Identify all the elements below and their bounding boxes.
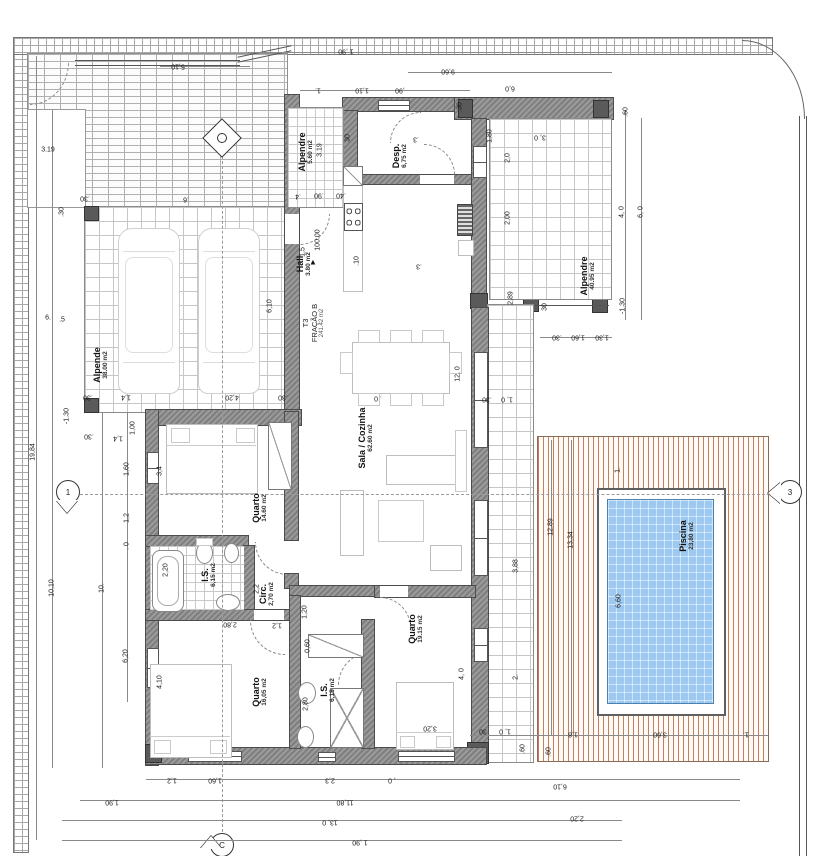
dimension-label: 4, 0: [619, 206, 626, 218]
dimension-label: 1,2: [272, 622, 282, 629]
dimension-label: 4,20: [225, 394, 239, 401]
dimension-label: 1,80: [487, 129, 494, 143]
dimension-label: 30: [542, 303, 549, 311]
room-area: 16,05 m2: [261, 677, 269, 707]
coffee-table: [378, 500, 424, 542]
room-name: Alpendre: [579, 256, 589, 295]
dimension-label: .4: [295, 193, 301, 200]
dimension-label: 6,10: [553, 783, 567, 790]
kitchen-window: [473, 146, 487, 178]
room-name: I.S.: [319, 678, 329, 702]
dimension-label: 1,10: [355, 87, 369, 94]
dimension-label: . 0: [374, 395, 382, 402]
bed-line: [396, 732, 452, 733]
level-marker-value: 100.00: [315, 229, 322, 250]
dimension-label: 0,60: [305, 639, 312, 653]
room-area: 6,15 m2: [329, 678, 337, 702]
dim-line: [300, 90, 470, 91]
south-window-2: [318, 752, 336, 762]
dimension-label: .30: [278, 394, 288, 401]
room-area: 3.80 m2: [305, 252, 313, 276]
dim-line: [248, 52, 612, 53]
bath2-closet: [308, 634, 364, 658]
dimension-label: 1,90: [105, 799, 119, 806]
dimension-label: 5,10: [171, 63, 185, 70]
dimension-label: .60: [520, 744, 527, 754]
pantry-window: [378, 100, 410, 111]
pillow: [154, 740, 171, 754]
wardrobe-1: [268, 422, 292, 490]
dimension-label: 2,20: [163, 563, 170, 577]
dimension-label: 4,10: [157, 675, 164, 689]
dim-line: [641, 118, 642, 320]
fraction-title: T3 FRAÇÃO B 241.42 m2: [301, 304, 327, 342]
floor-plan-canvas: 1 3 C ▲ 100.00 T3 FRAÇÃO B 241.42 m2 5,1…: [0, 0, 816, 856]
car-1: [118, 228, 180, 394]
room-name: Alpendre: [297, 132, 307, 171]
section-marker-right: 3: [778, 480, 802, 504]
dimension-label: 1,8: [568, 731, 578, 738]
dimension-label: 13, 0: [322, 819, 338, 826]
room-area: 23,80 m2: [688, 520, 696, 552]
pillow: [236, 428, 255, 443]
room-area: 5.60 m2: [307, 132, 315, 171]
room-name: Piscina: [678, 520, 688, 552]
dimension-label: 6.: [45, 315, 51, 322]
room-label-hall: Hall3.80 m2: [295, 252, 313, 276]
bed-line: [166, 445, 256, 446]
room-area: 6,15 m2: [210, 563, 218, 587]
dimension-label: .40: [336, 192, 346, 199]
fridge-icon: [458, 205, 472, 235]
dimension-label: 6,20: [123, 649, 130, 663]
pantry-door-opening: [420, 175, 454, 184]
dimension-label: 9,60: [441, 68, 455, 75]
room-label-is-1: I.S.6,15 m2: [200, 563, 218, 587]
dimension-label: .60: [623, 107, 630, 117]
dim-line: [470, 735, 768, 736]
fraction-title-line1: T3: [301, 304, 310, 342]
dining-table: [352, 342, 450, 394]
dimension-label: .30: [482, 396, 492, 403]
dimension-label: 1 ,90: [338, 48, 354, 55]
toilet-1-tank: [196, 538, 213, 546]
dimension-label: .30: [83, 394, 93, 401]
dimension-label: 10.: [99, 583, 106, 593]
dimension-label: 3,60: [653, 731, 667, 738]
dimension-label: 6,10: [267, 299, 274, 313]
dimension-label: 1.: [615, 467, 622, 473]
dimension-label: 1,4: [121, 394, 131, 401]
room-name: Desp.: [391, 144, 401, 169]
dimension-label: .90: [314, 192, 324, 199]
dimension-label: 2,80: [223, 621, 237, 628]
stove-icon: [344, 203, 363, 231]
wall-north-porch: [455, 98, 613, 119]
dimension-label: ,90: [395, 87, 405, 94]
dimension-label: -1.30: [64, 408, 71, 424]
bedroom3-window-east: [474, 628, 488, 662]
room-label-quarto-2: Quarto16,05 m2: [251, 677, 269, 707]
porch-post-sw: [471, 294, 487, 308]
dimension-label: 2,89: [508, 291, 515, 305]
dimension-label: 1.: [743, 731, 749, 738]
dimension-label: 1, 0: [499, 728, 511, 735]
dimension-label: 13,34: [568, 531, 575, 549]
dimension-label: .30: [80, 195, 90, 202]
wall-pantry-kitchen: [345, 175, 480, 184]
room-name: Quarto: [251, 677, 261, 707]
washbasin-1: [216, 594, 240, 611]
carport-post-nw: [85, 207, 98, 220]
sofa-side: [340, 490, 364, 556]
dimension-label: .30: [457, 102, 464, 112]
room-area: 19.15 m2: [417, 614, 425, 644]
room-area: 14.60 m2: [261, 493, 269, 523]
sofa-long: [386, 455, 462, 485]
room-name: Hall: [295, 252, 305, 276]
armchair: [430, 545, 462, 571]
pillow: [210, 740, 227, 754]
dimension-label: 3, 0: [534, 134, 546, 141]
dim-line: [408, 72, 612, 73]
pillow: [400, 736, 415, 748]
dimension-label: . 0: [124, 542, 131, 550]
room-label-sala-cozinha: Sala / Cozinha62.60 m2: [357, 407, 375, 468]
dimension-label: 11,80: [337, 799, 354, 806]
dimension-label: .30: [552, 334, 562, 341]
dimension-label: .6: [183, 196, 189, 203]
dimension-label: 3.19: [41, 147, 55, 154]
dimension-label: 2,00: [505, 211, 512, 225]
gate-rail-1: [75, 60, 240, 61]
wall-corridor-south: [290, 586, 380, 596]
dimension-label: 1,60: [124, 462, 131, 476]
boundary-wall-left: [14, 38, 28, 852]
road-edge-line-inner: [806, 116, 807, 856]
dimension-label: 10,10: [49, 579, 56, 597]
bathtub: [152, 550, 184, 612]
dimension-label: 1,60: [208, 777, 222, 784]
section-marker-left-label: 1: [66, 488, 70, 497]
room-area: 40.95 m2: [589, 256, 597, 295]
room-label-alpendre-entry: Alpendre5.60 m2: [297, 132, 315, 171]
dimension-label: 2,3: [325, 777, 335, 784]
room-area: 6,75 m2: [401, 144, 409, 169]
hall-door-opening: [285, 214, 299, 244]
section-marker-right-arrow: [768, 482, 781, 504]
dimension-label: 12,89: [548, 518, 555, 536]
wall-bath1-east: [244, 546, 254, 616]
dimension-label: 6,60: [616, 594, 623, 608]
bedroom1-door-arc: [255, 542, 288, 575]
living-window-2: [474, 500, 488, 576]
dimension-label: 30: [479, 728, 487, 735]
pillow: [436, 736, 451, 748]
dimension-label: 4, 0: [459, 668, 466, 680]
south-window-3: [398, 751, 455, 762]
dimension-label: 1.: [315, 87, 321, 94]
boundary-curve-corner: [742, 40, 805, 119]
dimension-label: 1,2: [124, 513, 131, 523]
pillow: [171, 428, 190, 443]
dimension-label: 12, 0: [455, 366, 462, 382]
dimension-label: 2,20: [570, 815, 584, 822]
dim-line: [571, 440, 572, 735]
room-name: Quarto: [407, 614, 417, 644]
walkway-floor: [488, 305, 533, 762]
dimension-label: -1.30: [620, 298, 627, 314]
wall-bath2-west: [290, 596, 300, 748]
section-marker-left-arrow: [56, 500, 78, 513]
room-area: 2,70 m2: [268, 582, 276, 606]
dimension-label: 1,20: [302, 605, 309, 619]
dimension-label: 1 ,90: [352, 839, 368, 846]
dimension-label: , 0: [388, 777, 396, 784]
desp-door-arc-2: [424, 144, 455, 175]
chair: [422, 330, 444, 343]
sink-unit: [458, 240, 474, 256]
dim-line: [62, 820, 622, 821]
room-name: Circ.: [258, 582, 268, 606]
dimension-label: .60: [546, 747, 553, 757]
section-marker-right-label: 3: [788, 488, 792, 497]
dimension-label: 2,0: [505, 153, 512, 163]
dim-line: [80, 800, 740, 801]
chair: [422, 393, 444, 406]
dimension-label: .3: [416, 263, 422, 270]
dimension-label: 1, 0: [501, 396, 513, 403]
room-name: Sala / Cozinha: [357, 407, 367, 468]
dim-line: [62, 840, 622, 841]
bidet: [224, 543, 239, 563]
bedroom2-door-opening: [254, 610, 284, 620]
dimension-label: .10: [354, 256, 361, 266]
room-label-desp: Desp.6,75 m2: [391, 144, 409, 169]
chair: [340, 352, 353, 374]
room-name: Quarto: [251, 493, 261, 523]
room-name: I.S.: [200, 563, 210, 587]
dimension-label: 1,2: [167, 777, 177, 784]
dimension-label: .5: [59, 317, 65, 324]
carport-post-sw: [85, 399, 98, 412]
dimension-label: 1,30: [595, 334, 609, 341]
chair: [390, 393, 412, 406]
dimension-label: 6,0: [505, 85, 515, 92]
room-area: 38.00 m2: [102, 347, 110, 383]
fraction-title-line2: FRAÇÃO B: [310, 304, 319, 342]
dimension-label: 2,80: [303, 697, 310, 711]
toilet-2: [297, 726, 314, 748]
bed-line: [150, 736, 230, 737]
dimension-label: 3.19: [317, 143, 324, 157]
room-label-quarto-3: Quarto19.15 m2: [407, 614, 425, 644]
dim-line: [52, 110, 53, 768]
dimension-label: 30: [345, 134, 352, 142]
dimension-label: 6, 0: [638, 206, 645, 218]
dimension-label: .3: [413, 136, 419, 143]
dim-line: [146, 779, 740, 780]
dimension-label: 1,4: [113, 435, 123, 442]
dimension-label: 3,20: [423, 725, 437, 732]
fraction-title-line3: 241.42 m2: [319, 304, 327, 342]
dimension-label: 1,00: [130, 421, 137, 435]
dimension-label: 19,84: [30, 443, 37, 461]
pool-water: [607, 499, 714, 704]
kitchen-corner-unit: [343, 166, 363, 186]
kitchen-counter: [343, 184, 363, 292]
grid-diamond-dot: [217, 133, 227, 143]
room-area: 62.60 m2: [367, 407, 375, 468]
room-label-alpendre-poente: Alpendre40.95 m2: [579, 256, 597, 295]
dimension-label: 1,60: [571, 334, 585, 341]
room-label-alpende-carport: Alpende38.00 m2: [92, 347, 110, 383]
bedroom3-door-opening: [380, 586, 408, 597]
dim-line: [551, 440, 552, 735]
chair: [390, 330, 412, 343]
dimension-label: 3,4: [157, 466, 164, 476]
dimension-label: .30: [59, 207, 66, 217]
dimension-label: 3,88: [513, 559, 520, 573]
room-label-quarto-1: Quarto14.60 m2: [251, 493, 269, 523]
dimension-label: 2.: [513, 674, 520, 680]
room-name: Alpende: [92, 347, 102, 383]
section-marker-bottom-arrow: [200, 836, 222, 849]
room-label-circ: Circ.2,70 m2: [258, 582, 276, 606]
chair: [358, 330, 380, 343]
dimension-label: .30: [84, 433, 94, 440]
car-2: [198, 228, 260, 394]
room-label-piscina: Piscina23,80 m2: [678, 520, 696, 552]
porch-post-ne: [594, 101, 608, 117]
section-line-horizontal: [80, 494, 785, 495]
tv-bench: [455, 430, 467, 492]
room-label-is-2: I.S.6,15 m2: [319, 678, 337, 702]
